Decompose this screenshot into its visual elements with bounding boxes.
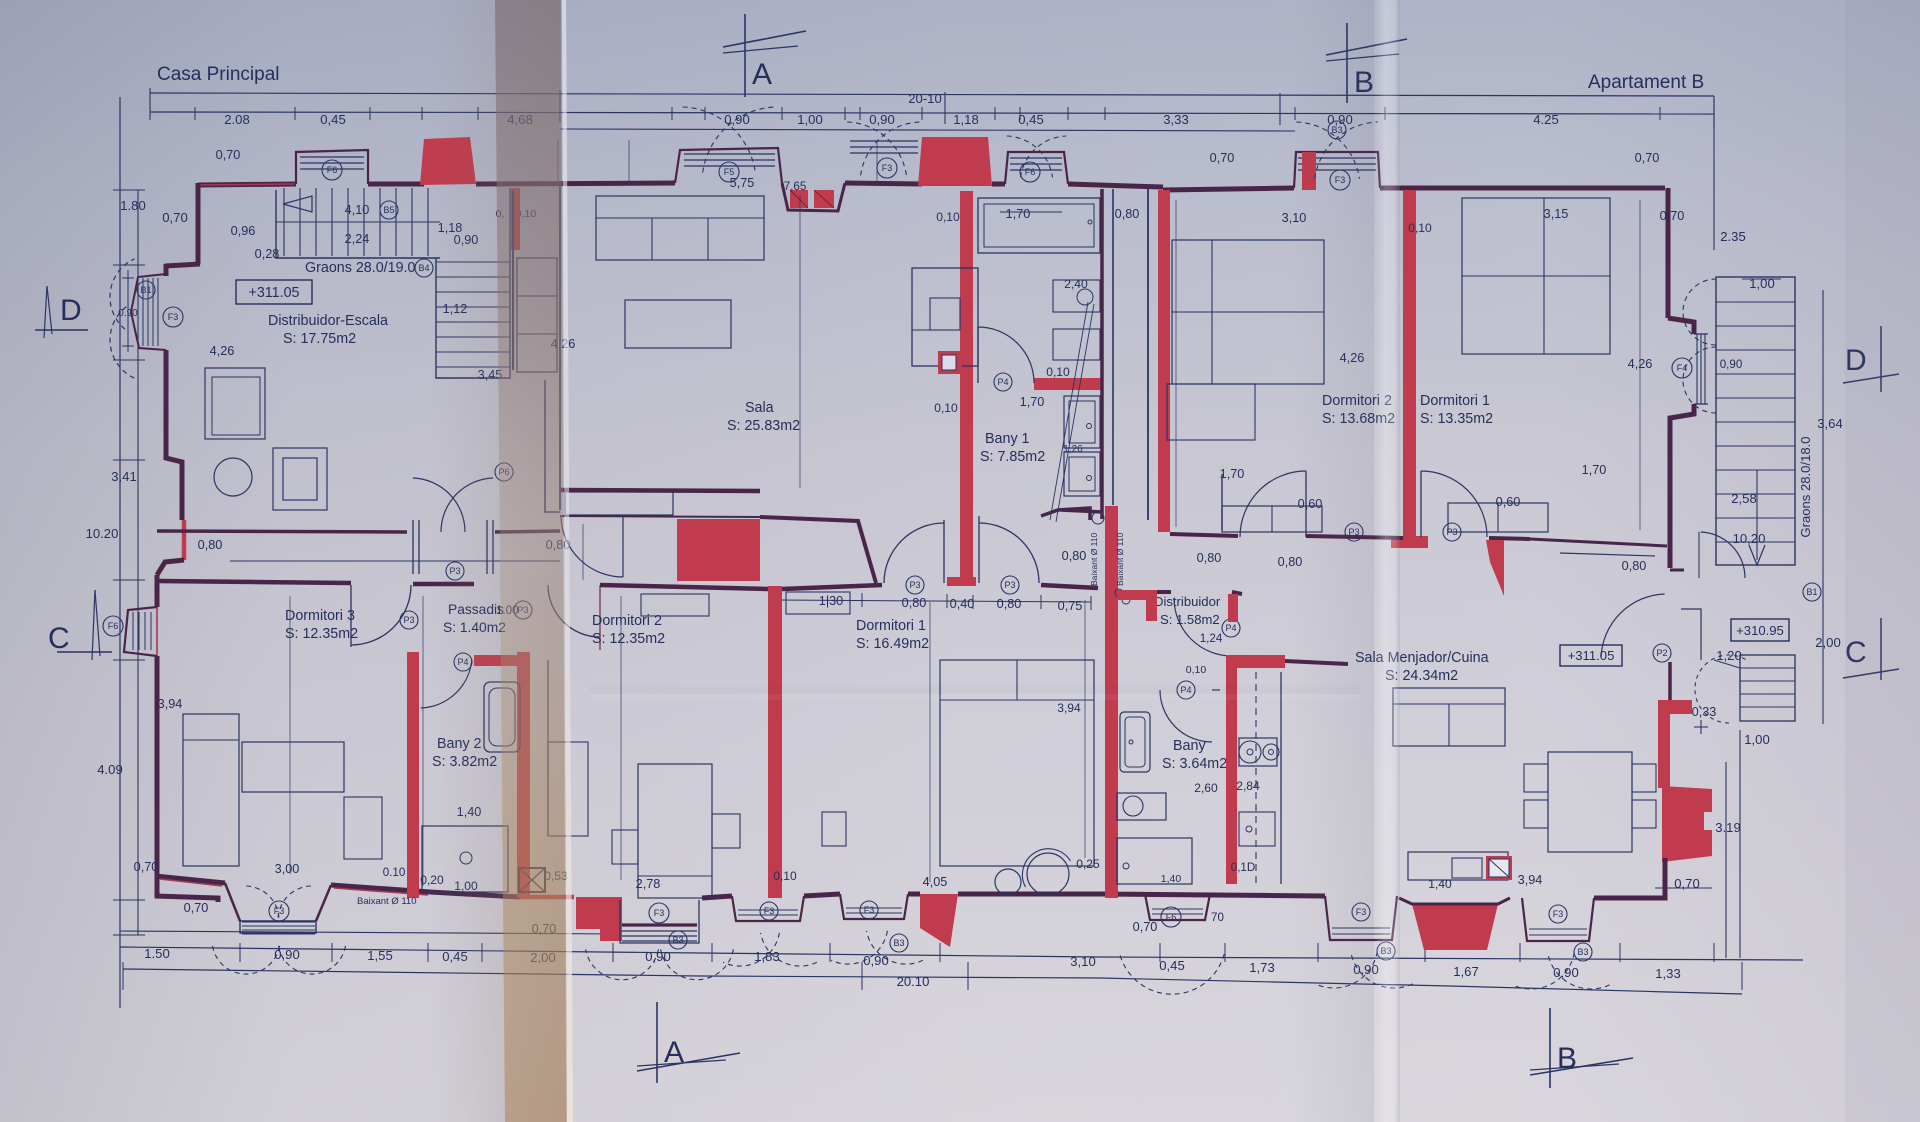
svg-text:0,75: 0,75 [1058, 599, 1083, 613]
svg-text:P4: P4 [1225, 623, 1236, 633]
svg-text:Dormitori 2: Dormitori 2 [592, 613, 662, 629]
svg-text:0,80: 0,80 [1197, 551, 1222, 565]
svg-text:2,40: 2,40 [1064, 277, 1088, 291]
svg-text:Graons 28.0/19.0: Graons 28.0/19.0 [305, 260, 416, 276]
svg-text:3,41: 3,41 [111, 469, 136, 484]
svg-text:S: 7.85m2: S: 7.85m2 [980, 449, 1045, 465]
svg-text:Apartament B: Apartament B [1588, 72, 1704, 93]
svg-text:Distribuidor-Escala: Distribuidor-Escala [268, 313, 388, 329]
svg-text:F3: F3 [1553, 909, 1564, 919]
svg-text:2,78: 2,78 [636, 877, 661, 891]
svg-text:0,40: 0,40 [950, 597, 975, 611]
svg-text:3,15: 3,15 [1544, 207, 1569, 221]
svg-text:C: C [48, 622, 70, 655]
svg-text:Sala: Sala [745, 400, 774, 416]
svg-text:Graons 28.0/18.0: Graons 28.0/18.0 [1798, 436, 1813, 537]
svg-text:0,28: 0,28 [255, 247, 280, 261]
svg-text:F6: F6 [108, 621, 119, 631]
svg-text:3.19: 3.19 [1715, 820, 1740, 835]
svg-text:0,70: 0,70 [1660, 209, 1685, 223]
svg-text:1,00: 1,00 [1744, 732, 1769, 747]
svg-text:0,90: 0,90 [274, 947, 299, 962]
svg-text:Dormitori 1: Dormitori 1 [856, 618, 926, 634]
svg-text:1,55: 1,55 [367, 948, 392, 963]
svg-text:5,75: 5,75 [730, 176, 755, 190]
svg-text:S: 3.64m2: S: 3.64m2 [1162, 756, 1227, 772]
svg-text:Distribuidor: Distribuidor [1154, 594, 1221, 609]
svg-text:1,70: 1,70 [1220, 467, 1245, 481]
svg-text:1,26: 1,26 [1063, 444, 1083, 455]
svg-text:P3: P3 [909, 580, 920, 590]
svg-text:1,00: 1,00 [1749, 276, 1774, 291]
svg-text:B4: B4 [418, 263, 429, 273]
svg-text:F3: F3 [654, 908, 665, 918]
svg-text:1,70: 1,70 [1582, 463, 1607, 477]
svg-text:S: 1.58m2: S: 1.58m2 [1160, 612, 1220, 627]
svg-text:A: A [752, 58, 772, 91]
svg-text:0,80: 0,80 [997, 597, 1022, 611]
svg-text:P3: P3 [403, 615, 414, 625]
svg-text:0,33: 0,33 [1692, 705, 1717, 719]
svg-text:3,33: 3,33 [1163, 112, 1188, 127]
svg-text:4.09: 4.09 [97, 762, 122, 777]
svg-text:0,10: 0,10 [1186, 664, 1207, 676]
svg-text:0,10: 0,10 [934, 401, 958, 415]
svg-text:0,90: 0,90 [869, 112, 894, 127]
svg-text:0,70: 0,70 [162, 210, 187, 225]
svg-text:S: 12.35m2: S: 12.35m2 [285, 626, 358, 642]
svg-text:0,10: 0,10 [773, 869, 797, 883]
svg-text:1,73: 1,73 [1249, 960, 1274, 975]
svg-text:S: 16.49m2: S: 16.49m2 [856, 636, 929, 652]
svg-text:B: B [1557, 1042, 1577, 1075]
svg-text:P3: P3 [1446, 527, 1457, 537]
svg-text:Casa Principal: Casa Principal [157, 64, 280, 85]
svg-text:3,00: 3,00 [275, 862, 300, 876]
svg-text:+311.05: +311.05 [248, 285, 299, 301]
svg-text:2,84: 2,84 [1236, 779, 1260, 793]
svg-text:2.35: 2.35 [1720, 229, 1745, 244]
svg-text:0,10: 0,10 [1408, 221, 1432, 235]
svg-text:1,40: 1,40 [1161, 873, 1182, 885]
svg-text:0,1D: 0,1D [1231, 861, 1256, 874]
svg-text:P3: P3 [1004, 580, 1015, 590]
svg-text:F3: F3 [864, 905, 875, 915]
svg-text:3,94: 3,94 [1518, 873, 1543, 887]
svg-text:1,70: 1,70 [1020, 395, 1045, 409]
svg-text:Dormitori 1: Dormitori 1 [1420, 393, 1490, 409]
svg-text:Bany 1: Bany 1 [985, 431, 1030, 447]
svg-text:Baixant Ø 110: Baixant Ø 110 [1089, 532, 1099, 586]
svg-text:0,70: 0,70 [1674, 876, 1699, 891]
svg-text:F6: F6 [1025, 167, 1036, 177]
svg-text:10.20: 10.20 [86, 526, 119, 541]
svg-text:0,90: 0,90 [1720, 358, 1743, 371]
svg-text:2,58: 2,58 [1731, 491, 1756, 506]
svg-text:+311.05: +311.05 [1568, 648, 1615, 663]
svg-text:2,24: 2,24 [345, 232, 370, 246]
svg-text:0,10: 0,10 [936, 210, 960, 224]
svg-text:0.10: 0.10 [383, 866, 406, 879]
svg-text:70: 70 [1211, 911, 1224, 924]
svg-text:F3: F3 [168, 312, 179, 322]
svg-text:S: 25.83m2: S: 25.83m2 [727, 418, 800, 434]
svg-text:1,00: 1,00 [797, 112, 822, 127]
svg-text:4,05: 4,05 [923, 875, 948, 889]
svg-text:0,80: 0,80 [902, 596, 927, 610]
svg-text:0,10: 0,10 [1046, 365, 1070, 379]
svg-text:S: 13.35m2: S: 13.35m2 [1420, 411, 1493, 427]
svg-text:1,33: 1,33 [1655, 966, 1680, 981]
svg-text:1.50: 1.50 [144, 946, 169, 961]
svg-text:Baixant Ø 110: Baixant Ø 110 [357, 896, 417, 907]
svg-text:Baixant Ø 110: Baixant Ø 110 [1115, 532, 1125, 586]
svg-text:0,70: 0,70 [184, 901, 209, 915]
svg-text:0,80: 0,80 [1115, 207, 1140, 221]
svg-text:P2: P2 [1656, 648, 1667, 658]
svg-text:0.90: 0.90 [118, 308, 138, 319]
svg-text:1,24: 1,24 [1200, 632, 1223, 645]
svg-text:1.80: 1.80 [120, 198, 145, 213]
svg-text:20.10: 20.10 [897, 974, 930, 989]
svg-text:2,00: 2,00 [1815, 635, 1840, 650]
svg-text:+310.95: +310.95 [1736, 623, 1784, 638]
svg-text:B1: B1 [140, 285, 151, 295]
svg-text:Dormitori 3: Dormitori 3 [285, 608, 355, 624]
svg-text:0,45: 0,45 [320, 112, 345, 127]
svg-text:4,26: 4,26 [210, 344, 235, 358]
svg-text:P4: P4 [997, 377, 1008, 387]
svg-text:3,94: 3,94 [1057, 701, 1081, 715]
svg-text:0,80: 0,80 [1622, 559, 1647, 573]
svg-text:0,90: 0,90 [863, 953, 888, 968]
svg-text:2.08: 2.08 [224, 112, 249, 127]
svg-text:3,64: 3,64 [1817, 416, 1842, 431]
svg-text:Bany: Bany [1173, 738, 1206, 754]
svg-text:0,80: 0,80 [198, 538, 223, 552]
svg-text:B3: B3 [1577, 947, 1588, 957]
svg-text:0,70: 0,70 [1635, 151, 1660, 165]
svg-text:0,80: 0,80 [1062, 549, 1087, 563]
svg-text:0,96: 0,96 [231, 224, 256, 238]
svg-text:1,70: 1,70 [1006, 207, 1031, 221]
svg-text:S: 12.35m2: S: 12.35m2 [592, 631, 665, 647]
svg-text:3,94: 3,94 [158, 697, 183, 711]
svg-text:S: 17.75m2: S: 17.75m2 [283, 331, 356, 347]
svg-text:2,60: 2,60 [1194, 781, 1218, 795]
svg-text:4,10: 4,10 [345, 203, 370, 217]
svg-text:20-10: 20-10 [908, 91, 942, 106]
svg-text:0,45: 0,45 [1159, 958, 1184, 973]
svg-text:1,18: 1,18 [953, 112, 978, 127]
svg-text:0,60: 0,60 [1496, 495, 1521, 509]
svg-text:0,70: 0,70 [134, 860, 159, 874]
svg-text:F3: F3 [764, 906, 775, 916]
svg-text:B5: B5 [383, 205, 394, 215]
svg-text:1|30: 1|30 [819, 594, 843, 608]
svg-text:0,25: 0,25 [1076, 857, 1100, 871]
svg-text:B1: B1 [1806, 587, 1817, 597]
svg-text:1,67: 1,67 [1453, 964, 1478, 979]
svg-text:10,20: 10,20 [1733, 531, 1766, 546]
svg-text:F3: F3 [882, 163, 893, 173]
svg-text:B3: B3 [672, 935, 683, 945]
svg-text:F6: F6 [327, 165, 338, 175]
svg-text:B3: B3 [893, 938, 904, 948]
svg-text:D: D [60, 294, 82, 327]
svg-text:4.25: 4.25 [1533, 112, 1558, 127]
svg-text:A: A [664, 1036, 684, 1069]
svg-text:0,70: 0,70 [216, 148, 241, 162]
svg-text:1,40: 1,40 [1428, 877, 1452, 891]
svg-text:0,70: 0,70 [1133, 920, 1158, 934]
svg-text:0,45: 0,45 [1018, 112, 1043, 127]
svg-text:0,70: 0,70 [1210, 151, 1235, 165]
svg-text:7,65: 7,65 [784, 180, 807, 193]
svg-text:F6: F6 [1166, 912, 1177, 922]
svg-text:3,10: 3,10 [1070, 954, 1095, 969]
